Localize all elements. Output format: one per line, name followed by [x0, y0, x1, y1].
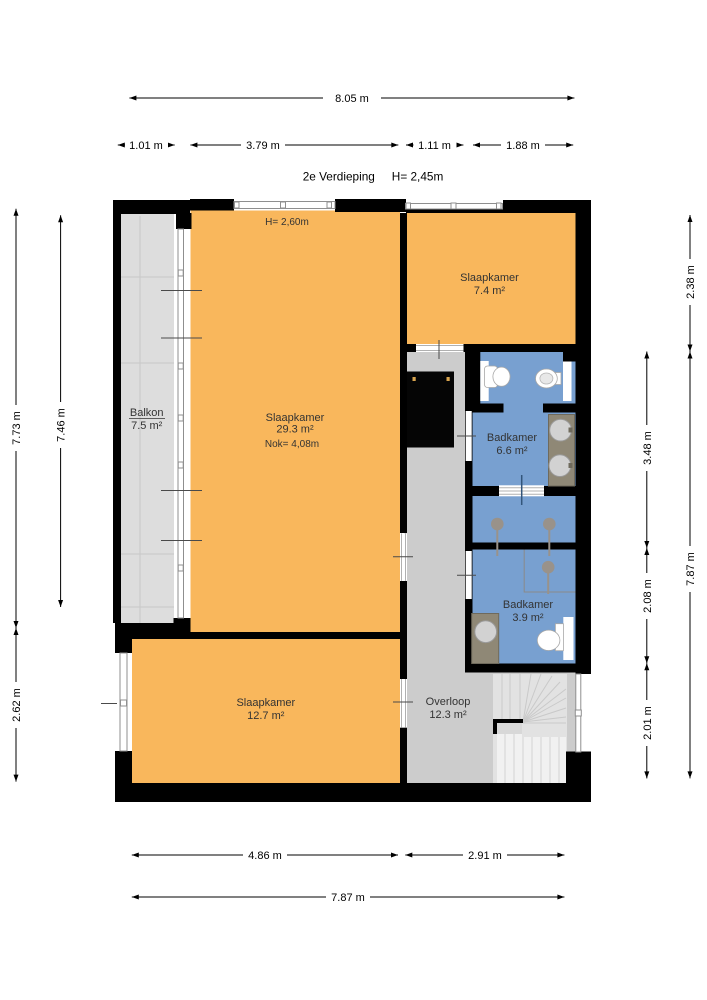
svg-text:2.91 m: 2.91 m [468, 850, 502, 862]
svg-text:12.7 m²: 12.7 m² [247, 710, 285, 722]
svg-text:3.79 m: 3.79 m [246, 140, 280, 152]
svg-text:1.11 m: 1.11 m [418, 140, 451, 152]
svg-text:7.87 m: 7.87 m [331, 892, 365, 904]
svg-text:2.62 m: 2.62 m [11, 688, 23, 722]
svg-text:1.01 m: 1.01 m [129, 140, 163, 152]
svg-text:Slaapkamer: Slaapkamer [236, 697, 295, 709]
svg-text:4.86 m: 4.86 m [248, 850, 282, 862]
svg-text:Badkamer: Badkamer [487, 432, 537, 444]
svg-text:7.73 m: 7.73 m [11, 411, 23, 445]
svg-text:6.6 m²: 6.6 m² [496, 445, 528, 457]
svg-text:H= 2,45m: H= 2,45m [392, 170, 444, 184]
svg-text:3.48 m: 3.48 m [642, 431, 654, 465]
svg-text:7.87 m: 7.87 m [685, 552, 697, 586]
svg-text:Badkamer: Badkamer [503, 599, 553, 611]
svg-text:29.3 m²: 29.3 m² [276, 424, 314, 436]
svg-text:7.4 m²: 7.4 m² [474, 285, 506, 297]
svg-text:2.08 m: 2.08 m [642, 579, 654, 613]
svg-text:Overloop: Overloop [426, 696, 471, 708]
svg-text:1.88 m: 1.88 m [506, 140, 540, 152]
svg-text:H= 2,60m: H= 2,60m [265, 217, 309, 228]
svg-text:Balkon: Balkon [130, 407, 164, 419]
svg-text:7.5 m²: 7.5 m² [131, 420, 163, 432]
svg-text:8.05 m: 8.05 m [335, 93, 369, 105]
svg-text:Slaapkamer: Slaapkamer [460, 272, 519, 284]
svg-text:7.46 m: 7.46 m [56, 408, 68, 442]
svg-text:12.3 m²: 12.3 m² [429, 709, 467, 721]
svg-text:3.9 m²: 3.9 m² [512, 612, 544, 624]
svg-text:Slaapkamer: Slaapkamer [266, 412, 325, 424]
svg-text:2.01 m: 2.01 m [642, 706, 654, 740]
svg-text:2e Verdieping: 2e Verdieping [303, 170, 375, 184]
svg-text:Nok= 4,08m: Nok= 4,08m [265, 439, 319, 450]
svg-text:2.38 m: 2.38 m [685, 265, 697, 299]
